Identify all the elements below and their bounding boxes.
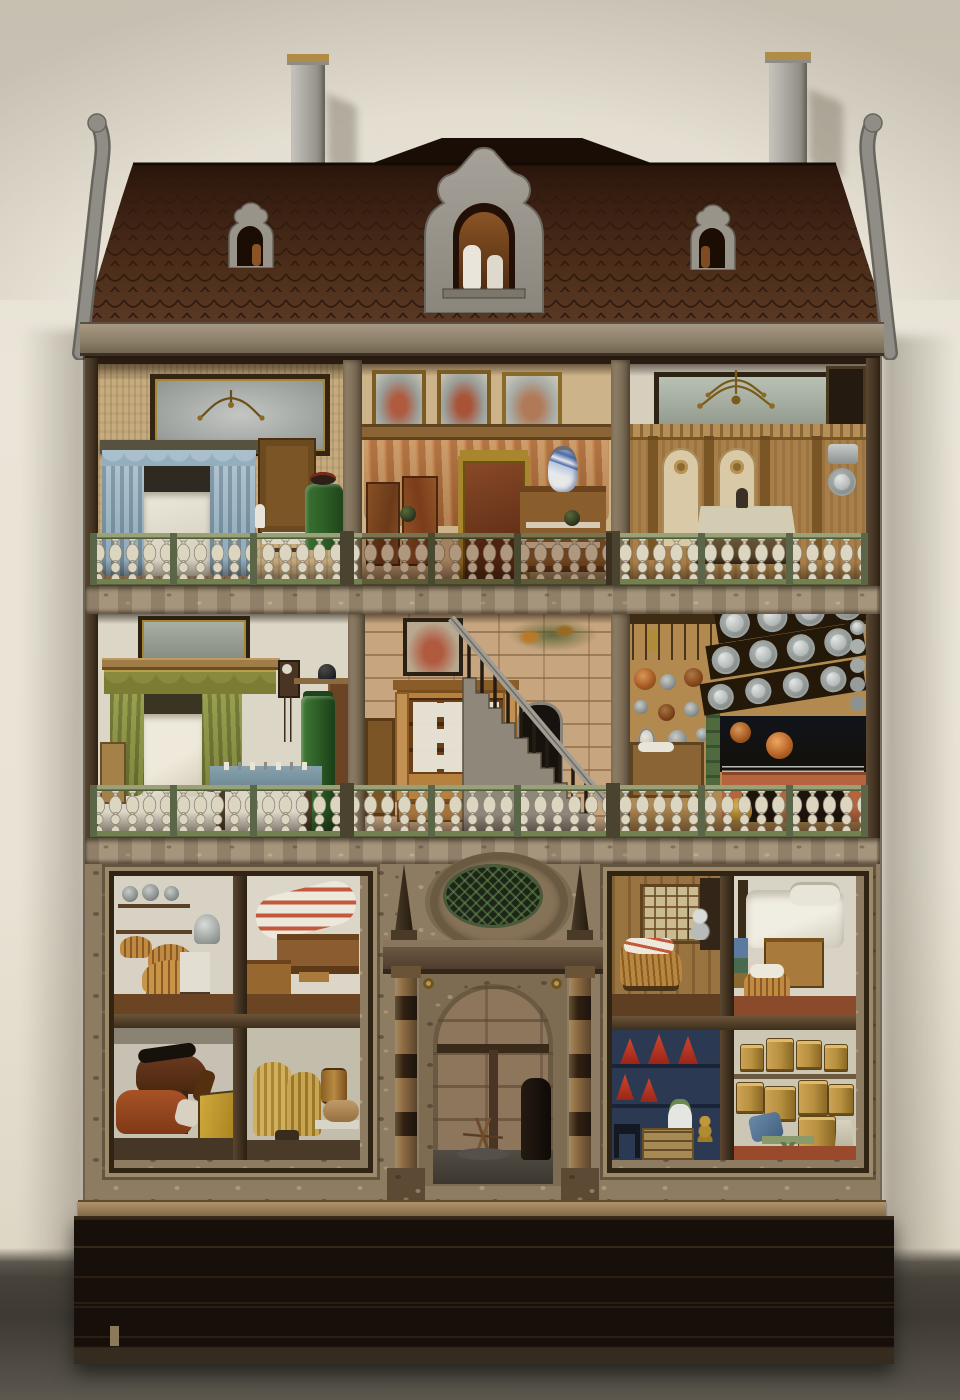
corner-post-middle-right: [866, 614, 880, 838]
arch-opening: [433, 984, 553, 1184]
right-display-window: [607, 871, 869, 1173]
stool-dark: [614, 1124, 640, 1158]
clock-weights: [284, 696, 292, 742]
dark-orb-1: [400, 506, 416, 522]
goblet: [736, 488, 748, 508]
dollhouse-photo: [0, 0, 960, 1400]
white-stove: [180, 952, 210, 998]
corner-post-upper-right: [866, 358, 880, 588]
spit-rods: [722, 764, 864, 772]
chimney-cap-right-icon: [765, 52, 811, 60]
balustrade-marbled-tint: [362, 533, 612, 585]
panel-medallion-2: [730, 460, 744, 474]
hanging-lamp: [688, 906, 711, 940]
brass-box: [648, 630, 657, 652]
barrel: [321, 1068, 347, 1104]
spandrel-boss-left: [423, 978, 434, 989]
cartouche-lattice: [443, 864, 543, 928]
house-shadow-right: [882, 336, 956, 1262]
small-dormer-right: [683, 200, 741, 270]
pillow: [790, 882, 840, 906]
plinth-board-seam: [74, 1302, 894, 1304]
cell-cooperage: [734, 1030, 856, 1160]
blue-valance: [102, 450, 256, 466]
obelisk-finial-left: [395, 864, 413, 932]
cell-chamber: [247, 876, 360, 1014]
plinth-board-seam: [74, 1246, 894, 1248]
kettle: [194, 914, 220, 944]
canopy-cornice: [102, 658, 280, 670]
helmet: [318, 664, 336, 679]
table-items: [224, 762, 308, 770]
linen-in-basket: [750, 964, 784, 978]
window-shelf-h: [114, 1014, 360, 1028]
plate-stack-side: [850, 620, 865, 635]
saint-portrait-3: [502, 372, 562, 432]
window-shelf-h: [612, 1016, 856, 1030]
fountain-basin: [828, 468, 856, 496]
basket-1: [120, 936, 152, 958]
clock-face: [282, 664, 292, 674]
chimney-cap-left-icon: [287, 54, 329, 62]
cornice: [80, 322, 884, 356]
cradle-blanket: [624, 938, 674, 954]
linen-roll: [638, 742, 674, 752]
sill-trim: [78, 1200, 886, 1216]
stool: [299, 972, 329, 982]
plinth: [74, 1216, 894, 1364]
cell-white-bedroom: [734, 876, 856, 1016]
marbled-column-left: [395, 974, 417, 1170]
left-display-window: [109, 871, 373, 1173]
scalloped-valance: [104, 670, 276, 694]
saint-portrait-1: [372, 370, 426, 430]
white-figurine: [255, 504, 265, 528]
center-baroque-dormer: [413, 141, 555, 313]
spandrel-boss-right: [551, 978, 562, 989]
panel-medallion-1: [674, 460, 688, 474]
cell-stable: [114, 1028, 233, 1160]
cell-straw-store: [247, 1028, 360, 1160]
dark-barrel: [521, 1078, 551, 1160]
faience-jug: [548, 450, 578, 492]
hearth-plate: [457, 1148, 509, 1160]
house-shadow-left: [22, 330, 88, 1260]
plinth-chip: [110, 1326, 119, 1346]
crate: [642, 1128, 694, 1160]
floor-beam-1: [85, 586, 880, 614]
saint-portrait-2: [437, 370, 491, 430]
brass-weights: [696, 1116, 714, 1142]
small-dormer-left: [221, 198, 279, 268]
dark-orb-2: [564, 510, 580, 526]
cross-beam: [362, 424, 611, 440]
entrance-portal: [383, 850, 603, 1204]
wainscot-frieze: [630, 424, 866, 440]
cell-nursery: [612, 876, 720, 1016]
marbled-column-right: [569, 974, 591, 1170]
stove-bowl: [310, 472, 336, 485]
pig: [323, 1100, 359, 1122]
balustrade-lower: [90, 783, 868, 840]
obelisk-finial-right: [571, 864, 589, 932]
wall-fountain: [828, 444, 858, 464]
brass-chandelier-icon: [186, 388, 276, 432]
cell-pantry: [114, 876, 233, 1014]
cell-blue-store: [612, 1030, 720, 1160]
